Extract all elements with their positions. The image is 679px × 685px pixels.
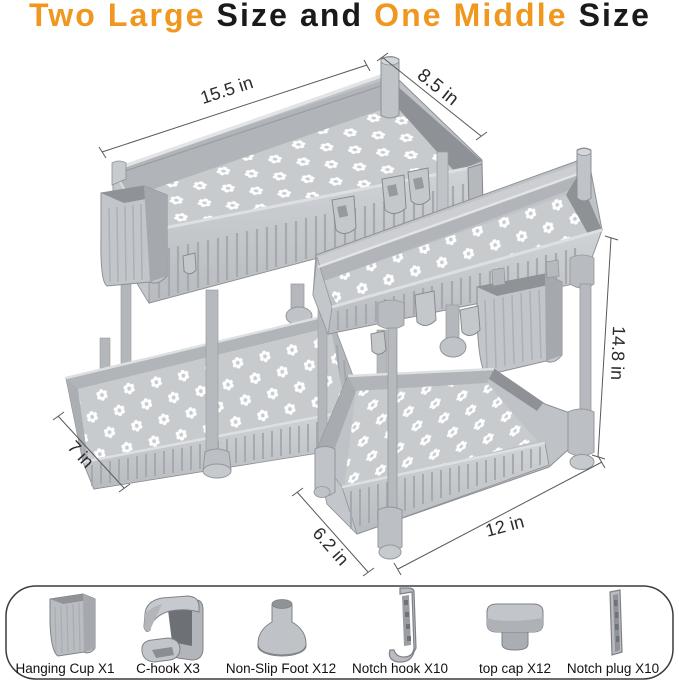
svg-text:12 in: 12 in (483, 511, 526, 540)
svg-text:Notch plug X10: Notch plug X10 (567, 661, 659, 676)
svg-text:Notch hook X10: Notch hook X10 (352, 661, 448, 676)
svg-text:6.2 in: 6.2 in (309, 523, 353, 569)
svg-text:top cap X12: top cap X12 (479, 661, 551, 676)
svg-text:Hanging Cup X1: Hanging Cup X1 (15, 661, 114, 676)
svg-text:14.8 in: 14.8 in (607, 326, 629, 381)
svg-text:15.5 in: 15.5 in (198, 72, 256, 108)
svg-text:Non-Slip Foot X12: Non-Slip Foot X12 (226, 661, 336, 676)
svg-text:C-hook X3: C-hook X3 (136, 661, 200, 676)
